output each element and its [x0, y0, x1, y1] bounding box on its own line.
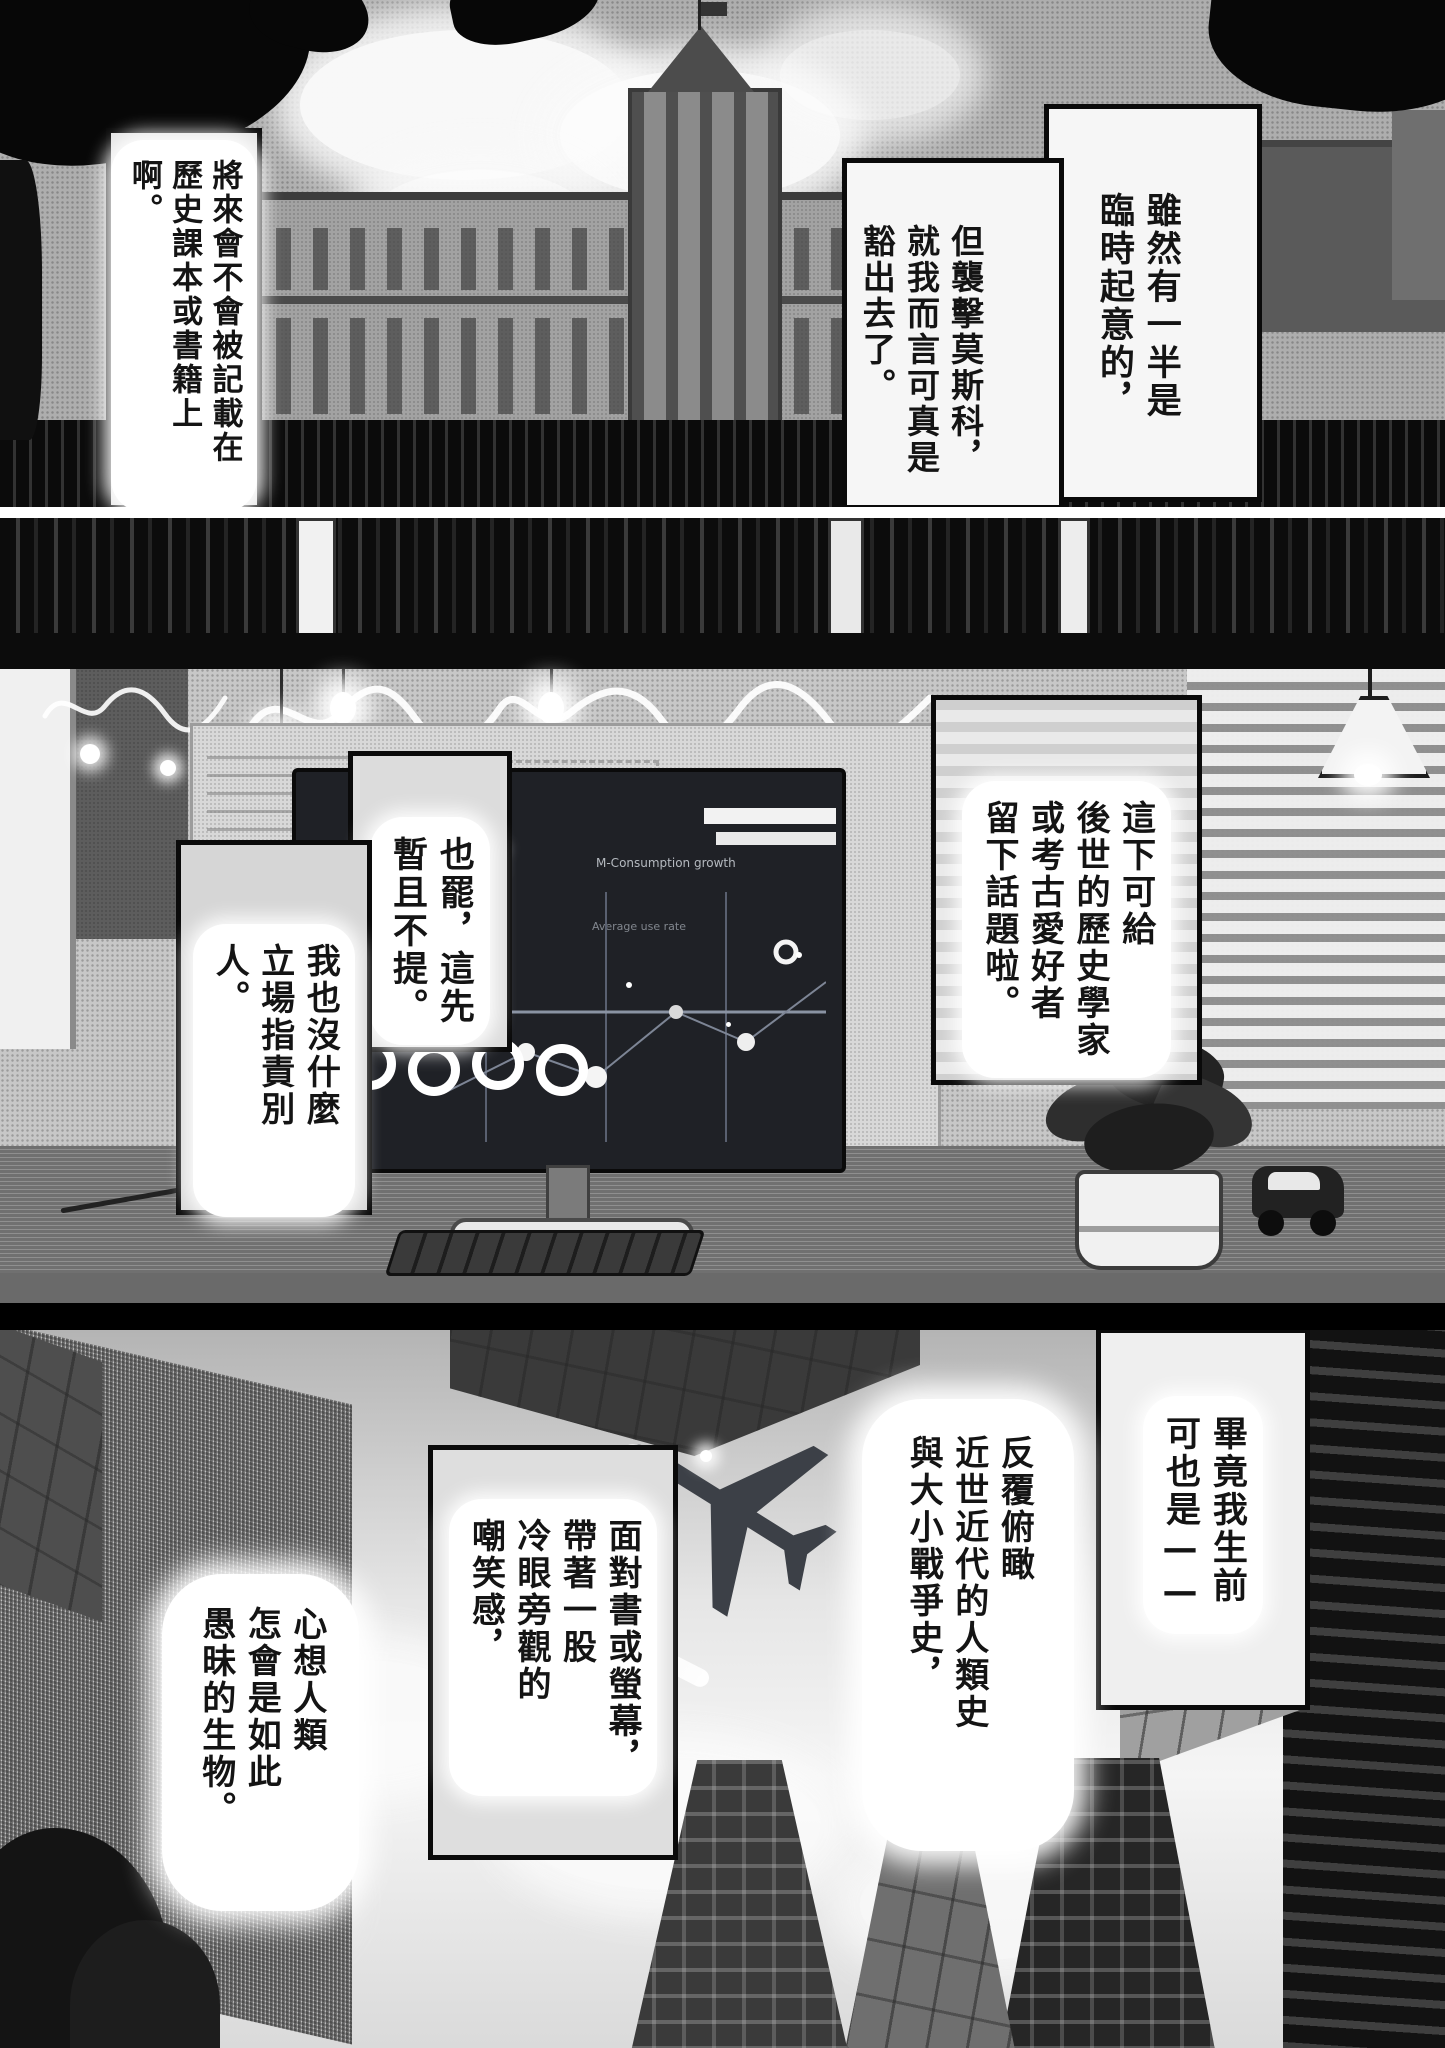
building-left-edge-dark	[0, 1330, 102, 1622]
tower-flag	[701, 2, 727, 16]
manga-page: 將來會不會被記載在 歷史課本或書籍上啊。 雖然有一半是 臨時起意的， 但襲擊莫斯…	[0, 0, 1445, 2048]
plane-glint	[700, 1450, 712, 1462]
caption-box-history: 將來會不會被記載在 歷史課本或書籍上啊。	[106, 128, 262, 507]
keyboard	[385, 1230, 706, 1276]
toy-car-wheel	[1258, 1210, 1284, 1236]
caption-box-lifetime: 畢竟我生前 可也是——	[1096, 1330, 1310, 1710]
toy-car-window	[1268, 1172, 1320, 1190]
bubble-foolish-creatures: 心想人類 怎會是如此 愚昧的生物。	[168, 1580, 353, 1905]
screen-star-dot	[796, 952, 802, 958]
toy-car-wheel	[1310, 1210, 1336, 1236]
screen-star-dot	[626, 982, 632, 988]
screen-bar	[716, 832, 836, 845]
screen-star-dot	[726, 1022, 731, 1027]
string-light-bulb	[538, 692, 564, 724]
desk-front-edge	[0, 1273, 1445, 1303]
side-tower-right	[1392, 110, 1445, 300]
garland-light	[160, 760, 176, 776]
speech-box-aside: 也罷，這先 暫且不提。	[348, 751, 512, 1052]
lamp-cord	[1368, 669, 1372, 697]
plant-pot	[1075, 1170, 1223, 1270]
tree-trunk-left-edge	[0, 160, 42, 440]
window-forest-view	[0, 518, 1445, 633]
shelf-ledge	[0, 633, 1445, 669]
speech-text-moscow-lead: 雖然有一半是 臨時起意的，	[1090, 192, 1184, 420]
gutter-black	[0, 1303, 1445, 1330]
panel-bottom-sky: 畢竟我生前 可也是—— 反覆俯瞰 近世近代的人類史 與大小戰爭史， 面對書或螢幕…	[0, 1330, 1445, 2048]
caption-text-history: 將來會不會被記載在 歷史課本或書籍上啊。	[118, 147, 251, 505]
bulb-cord	[280, 669, 283, 731]
window-mullion	[828, 518, 864, 639]
speech-text-moscow-rest: 但襲擊莫斯科， 就我而言可真是 豁出去了。	[854, 224, 987, 476]
bubble-history-overview: 反覆俯瞰 近世近代的人類史 與大小戰爭史，	[868, 1405, 1068, 1845]
lamp-bulb-glow	[1354, 764, 1382, 786]
speech-text-historians: 這下可給 後世的歷史學家 或考古愛好者 留下話題啦。	[969, 788, 1163, 1071]
speech-box-moscow: 雖然有一半是 臨時起意的， 但襲擊莫斯科， 就我而言可真是 豁出去了。	[842, 104, 1252, 504]
window-mullion	[1058, 518, 1090, 639]
speech-text-no-position: 我也沒什麼 立場指責別人。	[200, 931, 349, 1210]
speech-box-historians: 這下可給 後世的歷史學家 或考古愛好者 留下話題啦。	[931, 695, 1202, 1085]
panel-top-moscow: 將來會不會被記載在 歷史課本或書籍上啊。 雖然有一半是 臨時起意的， 但襲擊莫斯…	[0, 0, 1445, 507]
gutter-white	[0, 507, 1445, 518]
speech-text-aside: 也罷，這先 暫且不提。	[377, 824, 483, 1038]
string-light-bulb	[330, 692, 356, 724]
screen-bar	[704, 808, 836, 824]
speech-box-no-position: 我也沒什麼 立場指責別人。	[176, 840, 372, 1215]
garland-light	[80, 744, 100, 764]
caption-text-lifetime: 畢竟我生前 可也是——	[1150, 1403, 1256, 1627]
caption-text-screen: 面對書或螢幕， 帶著一股 冷眼旁觀的 嘲笑感，	[456, 1506, 650, 1789]
bubble-text-history-overview: 反覆俯瞰 近世近代的人類史 與大小戰爭史，	[900, 1435, 1037, 1731]
panel-middle-desk-room: Analyz M-Consumption growth Average use …	[0, 518, 1445, 1303]
bubble-text-foolish-creatures: 心想人類 怎會是如此 愚昧的生物。	[192, 1606, 329, 1828]
screen-ring-indicator	[536, 1044, 588, 1096]
palace-tower	[628, 88, 782, 470]
screen-label-consumption: M-Consumption growth	[596, 856, 736, 870]
caption-box-screen: 面對書或螢幕， 帶著一股 冷眼旁觀的 嘲笑感，	[428, 1445, 678, 1860]
